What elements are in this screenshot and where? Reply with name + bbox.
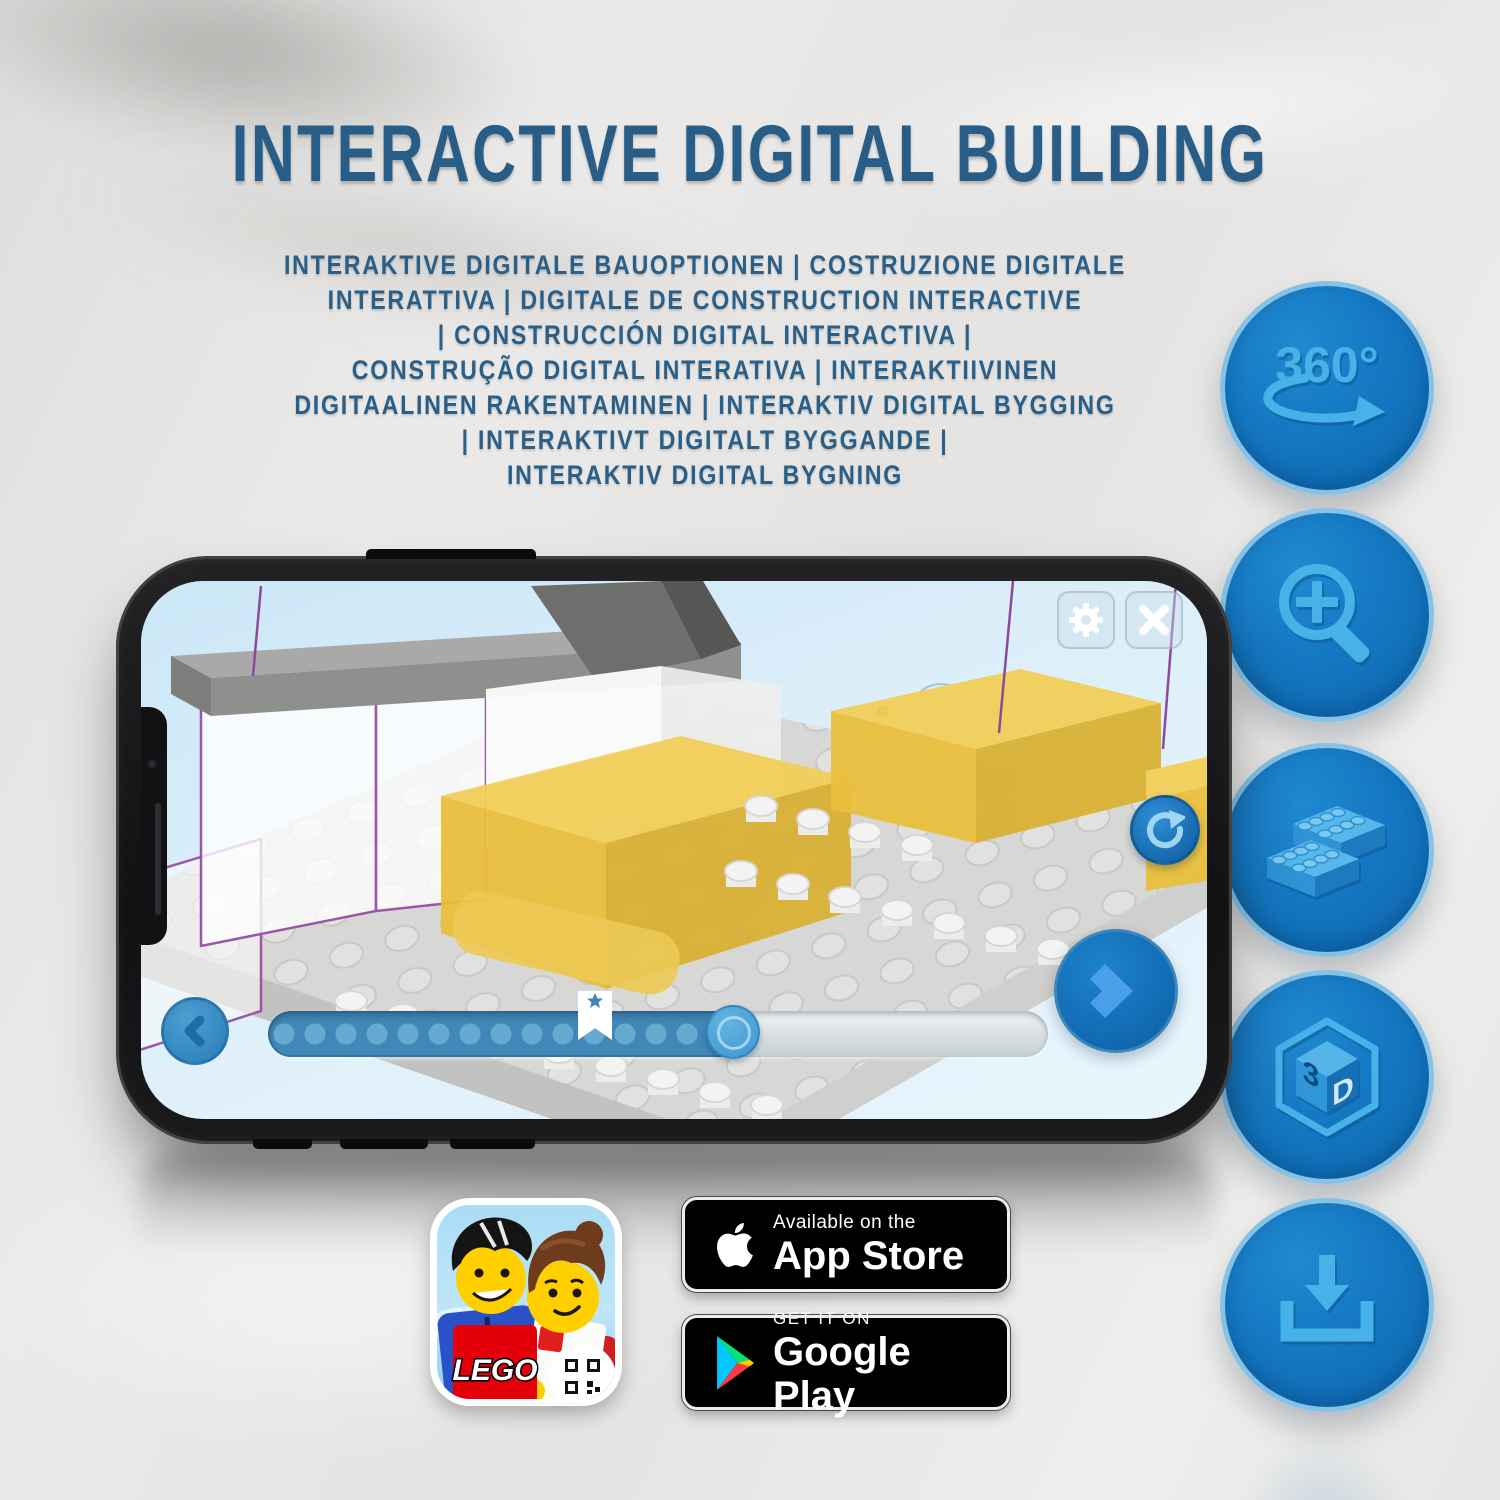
settings-button[interactable]: [1057, 591, 1115, 649]
subtitle-line: INTERATTIVA | DIGITALE DE CONSTRUCTION I…: [146, 283, 1264, 318]
subtitle-line: INTERAKTIV DIGITAL BYGNING: [146, 458, 1264, 493]
previous-step-button[interactable]: [161, 997, 229, 1065]
rotate-view-button[interactable]: [1130, 795, 1200, 865]
lego-app-icon[interactable]: LEGO: [430, 1198, 622, 1406]
subtitle-line: DIGITAALINEN RAKENTAMINEN | INTERAKTIV D…: [146, 388, 1264, 423]
rotate-icon: [1145, 810, 1185, 850]
app-store-label: App Store: [773, 1234, 989, 1278]
phone-reflection: [140, 1150, 1215, 1270]
phone-side-button: [253, 1139, 312, 1149]
feature-zoom: [1220, 508, 1434, 722]
close-icon: [1137, 603, 1171, 637]
chevron-left-icon: [178, 1014, 212, 1048]
app-screen: [141, 581, 1207, 1119]
apple-logo-icon: [703, 1219, 767, 1271]
3d-cube-icon: 3 D: [1257, 1007, 1397, 1147]
svg-text:LEGO: LEGO: [452, 1354, 537, 1387]
lego-app-icon-art: LEGO: [437, 1205, 615, 1399]
feature-download: [1220, 1198, 1434, 1412]
subtitle-line: CONSTRUÇÃO DIGITAL INTERATIVA | INTERAKT…: [146, 353, 1264, 388]
feature-3d-view: 3 D: [1220, 970, 1434, 1184]
app-store-badge[interactable]: Available on the App Store: [682, 1197, 1010, 1292]
zoom-in-icon: [1259, 547, 1395, 683]
download-icon: [1259, 1237, 1395, 1373]
phone-mockup: [116, 556, 1232, 1144]
360-rotation-icon: 360°: [1257, 318, 1397, 458]
phone-side-button: [366, 549, 536, 559]
marketing-poster: INTERACTIVE DIGITAL BUILDING INTERAKTIVE…: [0, 0, 1500, 1500]
subtitle-line: | CONSTRUCCIÓN DIGITAL INTERACTIVA |: [146, 318, 1264, 353]
phone-volume-button: [450, 1139, 535, 1149]
star-icon: [584, 991, 606, 1015]
progress-fill: [268, 1011, 743, 1057]
chevron-right-icon: [1083, 958, 1149, 1024]
front-camera: [147, 759, 157, 769]
google-play-badge[interactable]: GET IT ON Google Play: [682, 1315, 1010, 1410]
progress-slider[interactable]: [268, 1011, 1048, 1057]
minifigures-illustration: LEGO: [437, 1205, 615, 1399]
gear-icon: [1068, 602, 1104, 638]
earpiece-speaker: [155, 803, 161, 915]
close-button[interactable]: [1125, 591, 1183, 649]
phone-notch: [141, 707, 167, 945]
page-title: INTERACTIVE DIGITAL BUILDING: [165, 106, 1335, 201]
slider-thumb[interactable]: [706, 1005, 760, 1059]
play-triangle-icon: [703, 1335, 767, 1391]
multilanguage-subtitle: INTERAKTIVE DIGITALE BAUOPTIONEN | COSTR…: [146, 248, 1264, 493]
subtitle-line: INTERAKTIVE DIGITALE BAUOPTIONEN | COSTR…: [146, 248, 1264, 283]
brick-stack-icon: [1257, 780, 1397, 920]
google-play-label: Google Play: [773, 1330, 989, 1418]
phone-volume-button: [340, 1139, 428, 1149]
app-store-tagline: Available on the: [773, 1212, 989, 1234]
google-play-tagline: GET IT ON: [773, 1308, 989, 1330]
next-step-button[interactable]: [1054, 929, 1178, 1053]
subtitle-line: | INTERAKTIVT DIGITALT BYGGANDE |: [146, 423, 1264, 458]
feature-brick-options: [1220, 743, 1434, 957]
